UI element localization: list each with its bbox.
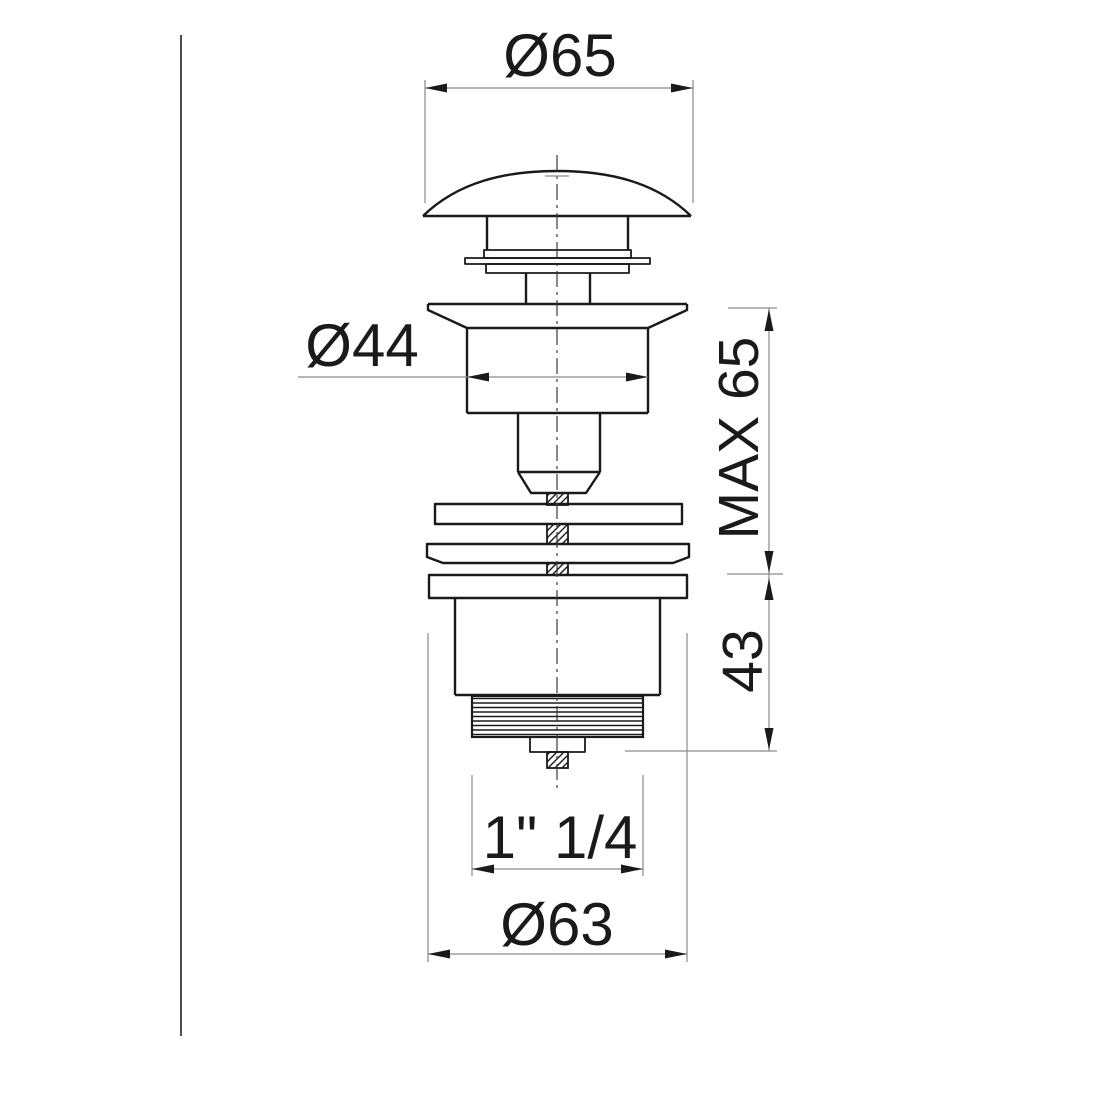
arrowhead-right — [665, 950, 687, 959]
dimension-label-body-diameter: Ø44 — [305, 312, 418, 379]
drain-plug-outline — [423, 155, 691, 788]
dimension-label-flange-diameter: Ø63 — [500, 891, 613, 958]
arrowhead-left — [425, 84, 447, 93]
dimension-lower-height: 43 — [625, 574, 777, 751]
arrowhead-down — [765, 551, 774, 573]
arrowhead-down — [765, 728, 774, 750]
dimension-label-thread-size: 1" 1/4 — [483, 804, 638, 871]
arrowhead-left — [467, 373, 489, 382]
dimension-thread-size: 1" 1/4 — [472, 775, 643, 876]
middle-stem — [518, 413, 600, 493]
arrowhead-left — [428, 950, 450, 959]
drawing-canvas: Ø65 Ø44 MAX 65 43 1" 1/4 Ø63 — [0, 0, 1100, 1100]
dimension-label-cap-diameter: Ø65 — [503, 22, 616, 89]
arrowhead-right — [626, 373, 648, 382]
upper-stem — [526, 273, 590, 304]
arrowhead-up — [765, 309, 774, 331]
lower-plate — [429, 575, 687, 598]
washer-plate — [435, 504, 682, 524]
dimension-label-lower-height: 43 — [711, 629, 775, 692]
arrowhead-right — [671, 84, 693, 93]
gasket — [427, 544, 689, 563]
dimension-max-clamp-height: MAX 65 — [707, 308, 783, 574]
dimension-body-diameter: Ø44 — [298, 312, 648, 382]
arrowhead-up — [765, 578, 774, 600]
dimension-label-max-clamp: MAX 65 — [707, 337, 771, 540]
technical-drawing: Ø65 Ø44 MAX 65 43 1" 1/4 Ø63 — [0, 0, 1100, 1100]
